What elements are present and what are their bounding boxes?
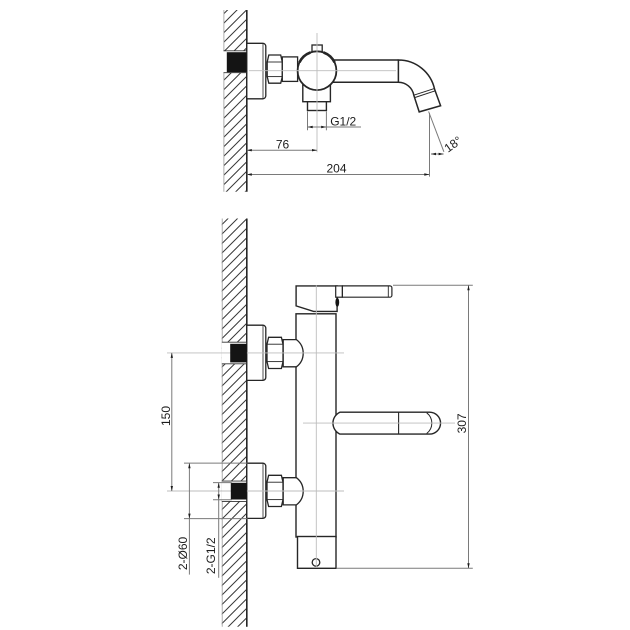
svg-text:2-Ø60: 2-Ø60 (176, 537, 190, 571)
svg-text:18°: 18° (442, 133, 465, 155)
svg-text:2-G1/2: 2-G1/2 (204, 537, 218, 574)
svg-text:204: 204 (326, 161, 346, 175)
svg-text:150: 150 (159, 406, 173, 426)
svg-text:76: 76 (276, 137, 290, 151)
svg-text:G1/2: G1/2 (330, 114, 356, 128)
svg-text:307: 307 (455, 413, 469, 433)
